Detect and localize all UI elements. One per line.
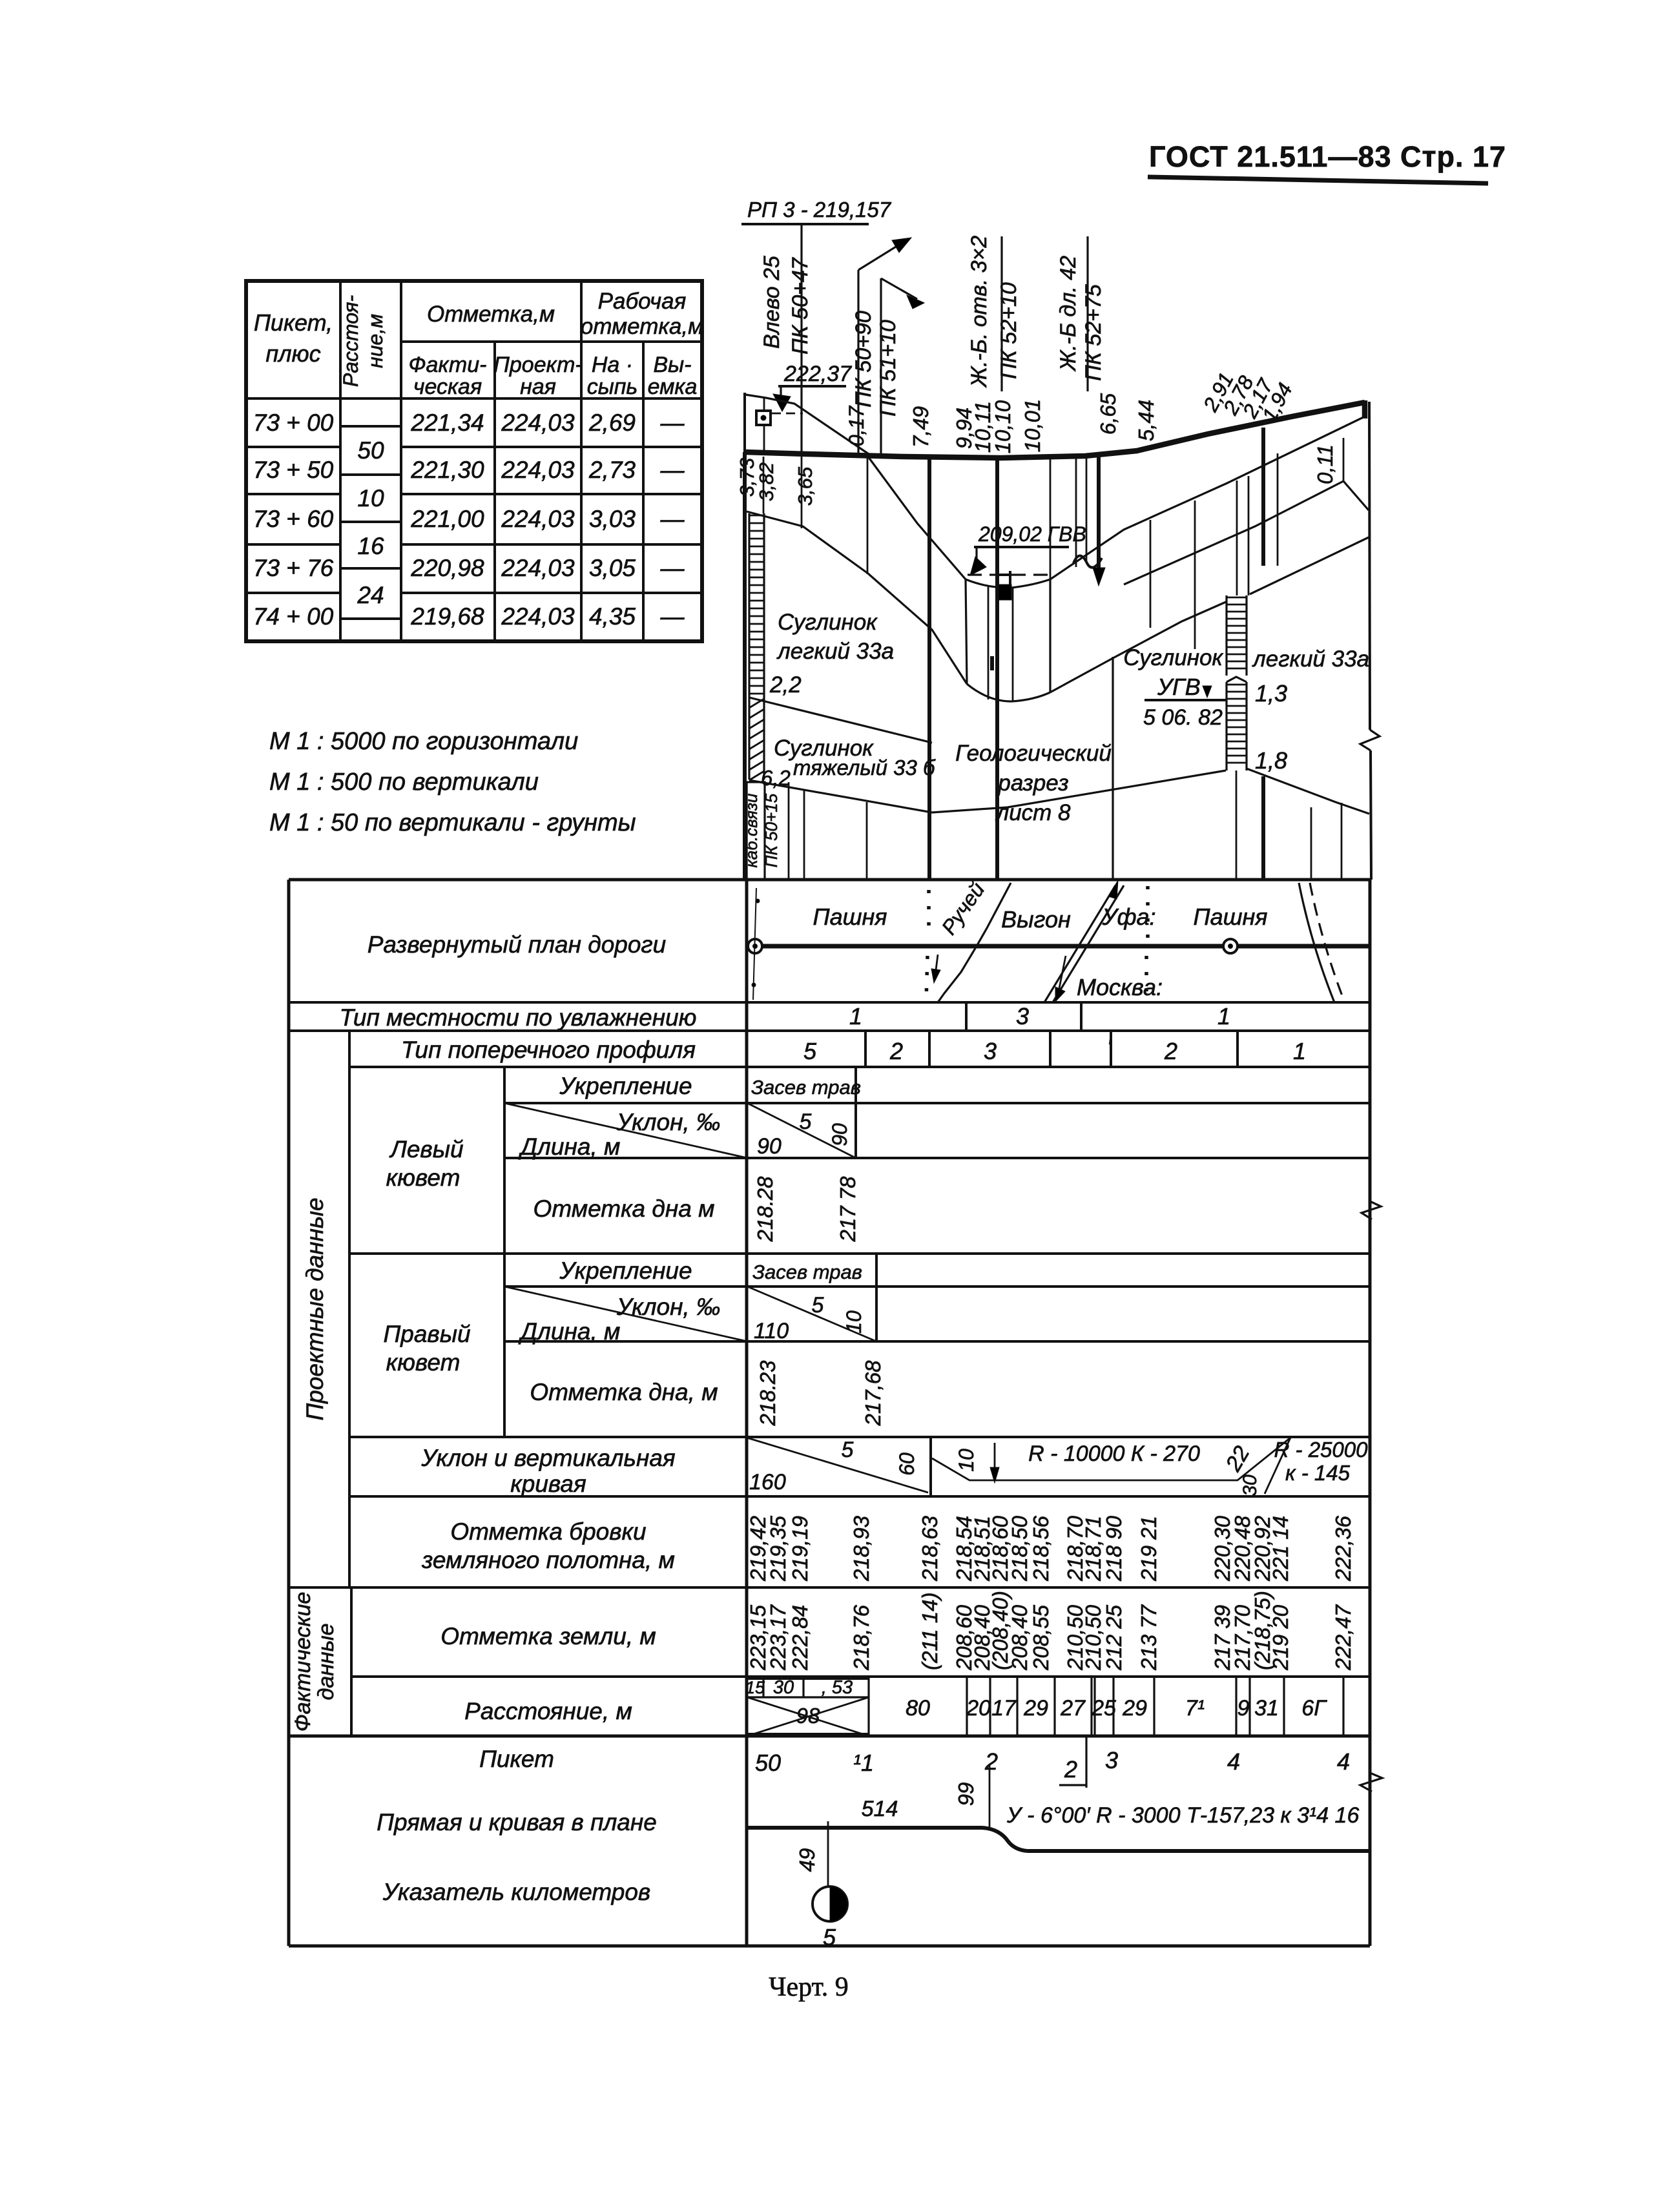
svg-text:ПК 51+10: ПК 51+10 (876, 320, 900, 417)
svg-text:220,98: 220,98 (410, 555, 484, 581)
svg-text:10,10: 10,10 (991, 400, 1015, 453)
svg-text:ПК 50+90: ПК 50+90 (851, 311, 876, 408)
svg-text:1,8: 1,8 (1255, 747, 1287, 774)
svg-text:У - 6°00′ R - 3000 Т-157,23: У - 6°00′ R - 3000 Т-157,23 к 3¹4 16 (1006, 1803, 1359, 1828)
svg-text:10: 10 (357, 485, 384, 512)
svg-text:208,55: 208,55 (1029, 1604, 1053, 1671)
svg-text:4,35: 4,35 (589, 603, 636, 630)
svg-text:218.23: 218.23 (756, 1360, 780, 1427)
svg-text:Правый: Правый (383, 1321, 470, 1347)
svg-text:218,50: 218,50 (1008, 1515, 1031, 1582)
svg-text:50: 50 (357, 437, 384, 464)
svg-text:Геологический: Геологический (955, 741, 1112, 766)
svg-text:160: 160 (749, 1470, 786, 1494)
svg-text:6Г: 6Г (1301, 1696, 1327, 1721)
svg-text:емка: емка (648, 375, 698, 399)
svg-text:31: 31 (1254, 1696, 1279, 1721)
svg-text:74 + 00: 74 + 00 (253, 603, 334, 630)
svg-text:1: 1 (849, 1003, 862, 1029)
svg-text:224,03: 224,03 (501, 603, 575, 630)
svg-text:73 + 76: 73 + 76 (253, 555, 334, 581)
svg-text:R - 25000: R - 25000 (1274, 1438, 1369, 1462)
svg-text:209,02 ГВВ: 209,02 ГВВ (978, 522, 1086, 546)
svg-text:ГОСТ 21.511—83 Стр. 17: ГОСТ 21.511—83 Стр. 17 (1149, 140, 1506, 173)
svg-text:217,68: 217,68 (861, 1360, 885, 1427)
svg-text:3,03: 3,03 (589, 506, 636, 532)
svg-text:Длина, м: Длина, м (518, 1318, 620, 1345)
svg-text:49: 49 (795, 1848, 819, 1872)
svg-text:5,44: 5,44 (1134, 400, 1158, 441)
svg-text:2,2: 2,2 (769, 672, 802, 698)
svg-text:2: 2 (1164, 1038, 1177, 1064)
svg-text:М 1 : 500 по вертикали: М 1 : 500 по вертикали (269, 769, 539, 796)
svg-text:Проектные данные: Проектные данные (302, 1197, 328, 1420)
svg-text:Указатель километров: Указатель километров (382, 1879, 651, 1905)
svg-text:98: 98 (796, 1704, 820, 1728)
svg-text:80: 80 (906, 1696, 930, 1721)
svg-text:5: 5 (823, 1924, 836, 1950)
svg-text:Уфа:: Уфа: (1101, 904, 1155, 930)
svg-text:90: 90 (828, 1123, 851, 1146)
svg-text:Расстоя-: Расстоя- (339, 295, 362, 387)
svg-text:отметка,м: отметка,м (581, 314, 703, 339)
svg-text:ческая: ческая (413, 375, 482, 399)
svg-text:224,03: 224,03 (501, 457, 575, 483)
svg-text:30: 30 (773, 1677, 794, 1698)
svg-text:99: 99 (954, 1783, 978, 1806)
svg-text:10,01: 10,01 (1020, 399, 1044, 453)
svg-text:ПК 50+15: ПК 50+15 (761, 793, 781, 867)
svg-text:224,03: 224,03 (501, 555, 575, 581)
svg-text:90: 90 (757, 1134, 782, 1159)
svg-text:Левый: Левый (389, 1136, 463, 1163)
svg-text:Черт. 9: Черт. 9 (769, 1972, 849, 2002)
svg-text:3,82: 3,82 (755, 462, 778, 501)
svg-text:219,19: 219,19 (788, 1516, 812, 1582)
svg-text:кювет: кювет (386, 1349, 461, 1376)
svg-text:легкий 33а: легкий 33а (776, 639, 894, 664)
svg-text:легкий 33а: легкий 33а (1252, 646, 1369, 672)
svg-text:27: 27 (1060, 1696, 1086, 1721)
svg-text:Суглинок: Суглинок (1123, 645, 1223, 670)
svg-text:Расстояние, м: Расстояние, м (464, 1698, 632, 1724)
svg-text:М 1 : 5000 по горизонтали: М 1 : 5000 по горизонтали (269, 728, 578, 755)
svg-text:—: — (660, 457, 685, 483)
svg-text:Засев трав: Засев трав (752, 1261, 862, 1283)
svg-text:плюс: плюс (265, 340, 320, 367)
svg-text:ПК 52+10: ПК 52+10 (997, 282, 1021, 379)
svg-text:2: 2 (1064, 1756, 1077, 1783)
svg-text:218,56: 218,56 (1029, 1515, 1053, 1582)
svg-text:73 + 00: 73 + 00 (253, 409, 334, 436)
svg-text:25: 25 (1091, 1696, 1116, 1721)
svg-text:219,68: 219,68 (410, 603, 484, 630)
svg-text:15: 15 (745, 1678, 765, 1697)
svg-text:Ж.-Б. отв. 3×2: Ж.-Б. отв. 3×2 (967, 236, 991, 389)
svg-text:Проект-: Проект- (493, 353, 582, 377)
svg-text:110: 110 (754, 1319, 789, 1343)
svg-text:Отметка,м: Отметка,м (427, 302, 555, 327)
svg-text:': ' (1107, 1034, 1112, 1060)
svg-text:—: — (660, 506, 685, 532)
svg-text:20: 20 (966, 1696, 991, 1721)
svg-text:221,00: 221,00 (410, 506, 484, 532)
svg-text:7¹: 7¹ (1185, 1696, 1205, 1721)
svg-text:16: 16 (357, 533, 384, 559)
svg-text:1,3: 1,3 (1255, 680, 1287, 707)
svg-text:кривая: кривая (510, 1471, 586, 1497)
svg-text:17: 17 (991, 1696, 1017, 1721)
svg-text:3: 3 (1105, 1747, 1118, 1773)
svg-text:ная: ная (520, 375, 556, 399)
svg-text:3,65: 3,65 (794, 466, 816, 506)
svg-text:29: 29 (1023, 1696, 1048, 1721)
svg-text:5: 5 (842, 1438, 854, 1462)
svg-text:5: 5 (800, 1110, 812, 1134)
svg-text:тяжелый 33 б: тяжелый 33 б (793, 756, 936, 780)
svg-text:0,17: 0,17 (845, 406, 868, 446)
svg-text:—: — (660, 555, 685, 581)
svg-text:Укрепление: Укрепление (559, 1073, 692, 1099)
svg-text:, 53: , 53 (822, 1677, 853, 1698)
svg-text:222,36: 222,36 (1331, 1515, 1355, 1582)
svg-text:218,63: 218,63 (918, 1515, 942, 1582)
svg-text:Пашня: Пашня (1193, 904, 1267, 930)
svg-text:10: 10 (955, 1449, 978, 1472)
svg-text:213 77: 213 77 (1137, 1604, 1161, 1671)
svg-text:каб.связи: каб.связи (741, 793, 761, 867)
svg-text:Отметка бровки: Отметка бровки (450, 1518, 646, 1545)
svg-text:кювет: кювет (386, 1164, 461, 1191)
svg-text:30: 30 (1239, 1474, 1261, 1496)
svg-text:Москва:: Москва: (1077, 974, 1163, 1000)
svg-text:60: 60 (895, 1452, 918, 1476)
svg-text:Укрепление: Укрепление (559, 1257, 692, 1284)
svg-text:данные: данные (314, 1623, 338, 1700)
svg-text:222,37: 222,37 (783, 362, 852, 386)
svg-text:лист 8: лист 8 (995, 800, 1071, 825)
svg-text:5 06. 82: 5 06. 82 (1143, 705, 1223, 730)
svg-text:5: 5 (803, 1038, 817, 1064)
svg-text:1: 1 (1293, 1038, 1306, 1064)
svg-text:Отметка дна м: Отметка дна м (533, 1195, 715, 1222)
svg-text:50: 50 (755, 1750, 781, 1776)
svg-text:Пикет,: Пикет, (254, 309, 333, 336)
svg-text:2,73: 2,73 (588, 457, 636, 483)
svg-text:Отметка дна, м: Отметка дна, м (530, 1379, 718, 1405)
svg-text:219,35: 219,35 (766, 1515, 790, 1582)
svg-text:218.28: 218.28 (753, 1176, 777, 1243)
svg-text:ПК 52+75: ПК 52+75 (1081, 284, 1106, 381)
svg-text:0,11: 0,11 (1313, 444, 1337, 484)
svg-text:221,30: 221,30 (410, 457, 484, 483)
svg-text:4: 4 (1337, 1748, 1350, 1775)
svg-text:разрез: разрез (997, 770, 1068, 796)
svg-text:Выгон: Выгон (1001, 906, 1071, 933)
svg-text:218,93: 218,93 (849, 1515, 873, 1582)
svg-text:ПК 50+47: ПК 50+47 (788, 257, 813, 355)
svg-text:24: 24 (357, 582, 384, 608)
svg-text:3: 3 (1016, 1003, 1029, 1029)
svg-text:Рабочая: Рабочая (598, 289, 687, 314)
svg-text:УГВ: УГВ (1157, 674, 1201, 700)
svg-text:224,03: 224,03 (501, 409, 575, 436)
svg-text:223,17: 223,17 (766, 1604, 790, 1671)
svg-text:219 21: 219 21 (1137, 1516, 1161, 1582)
svg-text:земляного полотна, м: земляного полотна, м (421, 1547, 675, 1573)
svg-text:—: — (660, 409, 685, 436)
svg-text:218 90: 218 90 (1102, 1515, 1126, 1582)
svg-text:73 + 60: 73 + 60 (253, 506, 334, 532)
svg-text:к - 145: к - 145 (1285, 1461, 1351, 1485)
svg-text:Развернутый план дороги: Развернутый план дороги (368, 931, 667, 958)
svg-text:Фактические: Фактические (291, 1592, 315, 1732)
svg-text:Уклон и вертикальная: Уклон и вертикальная (420, 1445, 676, 1471)
svg-text:219 20: 219 20 (1269, 1604, 1292, 1671)
svg-text:2,69: 2,69 (588, 409, 636, 436)
svg-text:212 25: 212 25 (1102, 1604, 1126, 1671)
svg-text:217 78: 217 78 (836, 1176, 860, 1243)
svg-text:221 14: 221 14 (1269, 1516, 1292, 1582)
svg-text:Ж.-Б дл. 42: Ж.-Б дл. 42 (1056, 256, 1081, 372)
svg-text:сыпь: сыпь (587, 375, 638, 399)
svg-text:Длина, м: Длина, м (518, 1133, 620, 1160)
svg-text:—: — (660, 603, 685, 630)
svg-text:РП 3 - 219,157: РП 3 - 219,157 (747, 198, 892, 222)
svg-text:Пашня: Пашня (813, 904, 887, 930)
svg-text:218,76: 218,76 (849, 1604, 873, 1671)
svg-text:Тип поперечного профиля: Тип поперечного профиля (401, 1037, 696, 1063)
svg-text:Пикет: Пикет (479, 1746, 554, 1772)
svg-text:Суглинок: Суглинок (778, 610, 878, 635)
svg-text:¹1: ¹1 (853, 1750, 874, 1776)
svg-text:6,65: 6,65 (1096, 393, 1120, 435)
svg-text:514: 514 (862, 1797, 898, 1821)
svg-text:9: 9 (1238, 1696, 1250, 1721)
svg-text:2: 2 (889, 1038, 903, 1064)
svg-text:Отметка земли, м: Отметка земли, м (440, 1623, 656, 1649)
svg-text:ние,м: ние,м (364, 314, 387, 368)
svg-text:3,05: 3,05 (589, 555, 636, 581)
svg-text:224,03: 224,03 (501, 506, 575, 532)
svg-text:4: 4 (1227, 1748, 1240, 1775)
svg-text:3: 3 (984, 1038, 997, 1064)
svg-text:73 + 50: 73 + 50 (253, 457, 334, 483)
svg-text:Прямая и кривая в плане: Прямая и кривая в плане (377, 1809, 657, 1835)
svg-text:R - 10000 К - 270: R - 10000 К - 270 (1028, 1442, 1200, 1466)
svg-text:5: 5 (812, 1293, 824, 1318)
svg-text:222,84: 222,84 (788, 1605, 812, 1671)
svg-text:221,34: 221,34 (410, 409, 484, 436)
svg-text:Влево 25: Влево 25 (760, 256, 784, 349)
svg-text:Вы-: Вы- (653, 353, 691, 377)
svg-text:На ·: На · (592, 353, 633, 377)
svg-text:1: 1 (1217, 1003, 1230, 1029)
svg-text:Засев трав: Засев трав (751, 1076, 861, 1099)
svg-text:2: 2 (984, 1748, 998, 1775)
svg-text:222,47: 222,47 (1331, 1604, 1355, 1671)
svg-text:Факти-: Факти- (409, 353, 487, 377)
svg-text:Тип местности по увлажнению: Тип местности по увлажнению (340, 1004, 697, 1031)
svg-text:7,49: 7,49 (909, 406, 933, 448)
svg-text:29: 29 (1122, 1696, 1147, 1721)
svg-text:208,40: 208,40 (1008, 1604, 1031, 1671)
svg-text:(211 14): (211 14) (918, 1593, 942, 1670)
svg-text:10: 10 (842, 1310, 865, 1334)
svg-text:М 1 : 50 по вертикали: М 1 : 50 по вертикали - грунты (269, 809, 636, 836)
